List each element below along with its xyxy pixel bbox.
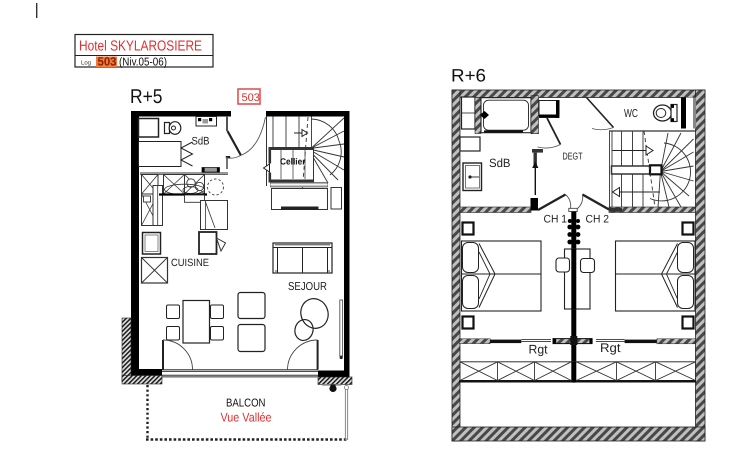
svg-text:Rgt: Rgt [529, 343, 549, 357]
svg-text:SdB: SdB [192, 136, 210, 148]
svg-text:R+5: R+5 [130, 86, 163, 108]
svg-text:BALCON: BALCON [226, 398, 266, 410]
svg-text:SdB: SdB [489, 156, 511, 170]
svg-text:CH 1: CH 1 [544, 214, 568, 226]
svg-text:CH 2: CH 2 [586, 214, 610, 226]
svg-text:R+6: R+6 [451, 66, 486, 86]
svg-text:Log: Log [81, 60, 91, 67]
svg-text:SEJOUR: SEJOUR [288, 281, 327, 293]
svg-text:WC: WC [624, 108, 638, 120]
svg-text:Hotel SKYLAROSIERE: Hotel SKYLAROSIERE [79, 39, 202, 55]
svg-text:Rgt: Rgt [600, 341, 621, 355]
svg-text:503: 503 [98, 55, 117, 69]
svg-text:DEGT: DEGT [563, 152, 583, 163]
svg-text:Vue Vallée: Vue Vallée [221, 411, 272, 425]
svg-text:Cellier: Cellier [280, 157, 306, 167]
svg-text:CUISINE: CUISINE [171, 257, 209, 269]
svg-text:(Niv.05-06): (Niv.05-06) [119, 57, 167, 69]
svg-text:503: 503 [242, 92, 260, 104]
